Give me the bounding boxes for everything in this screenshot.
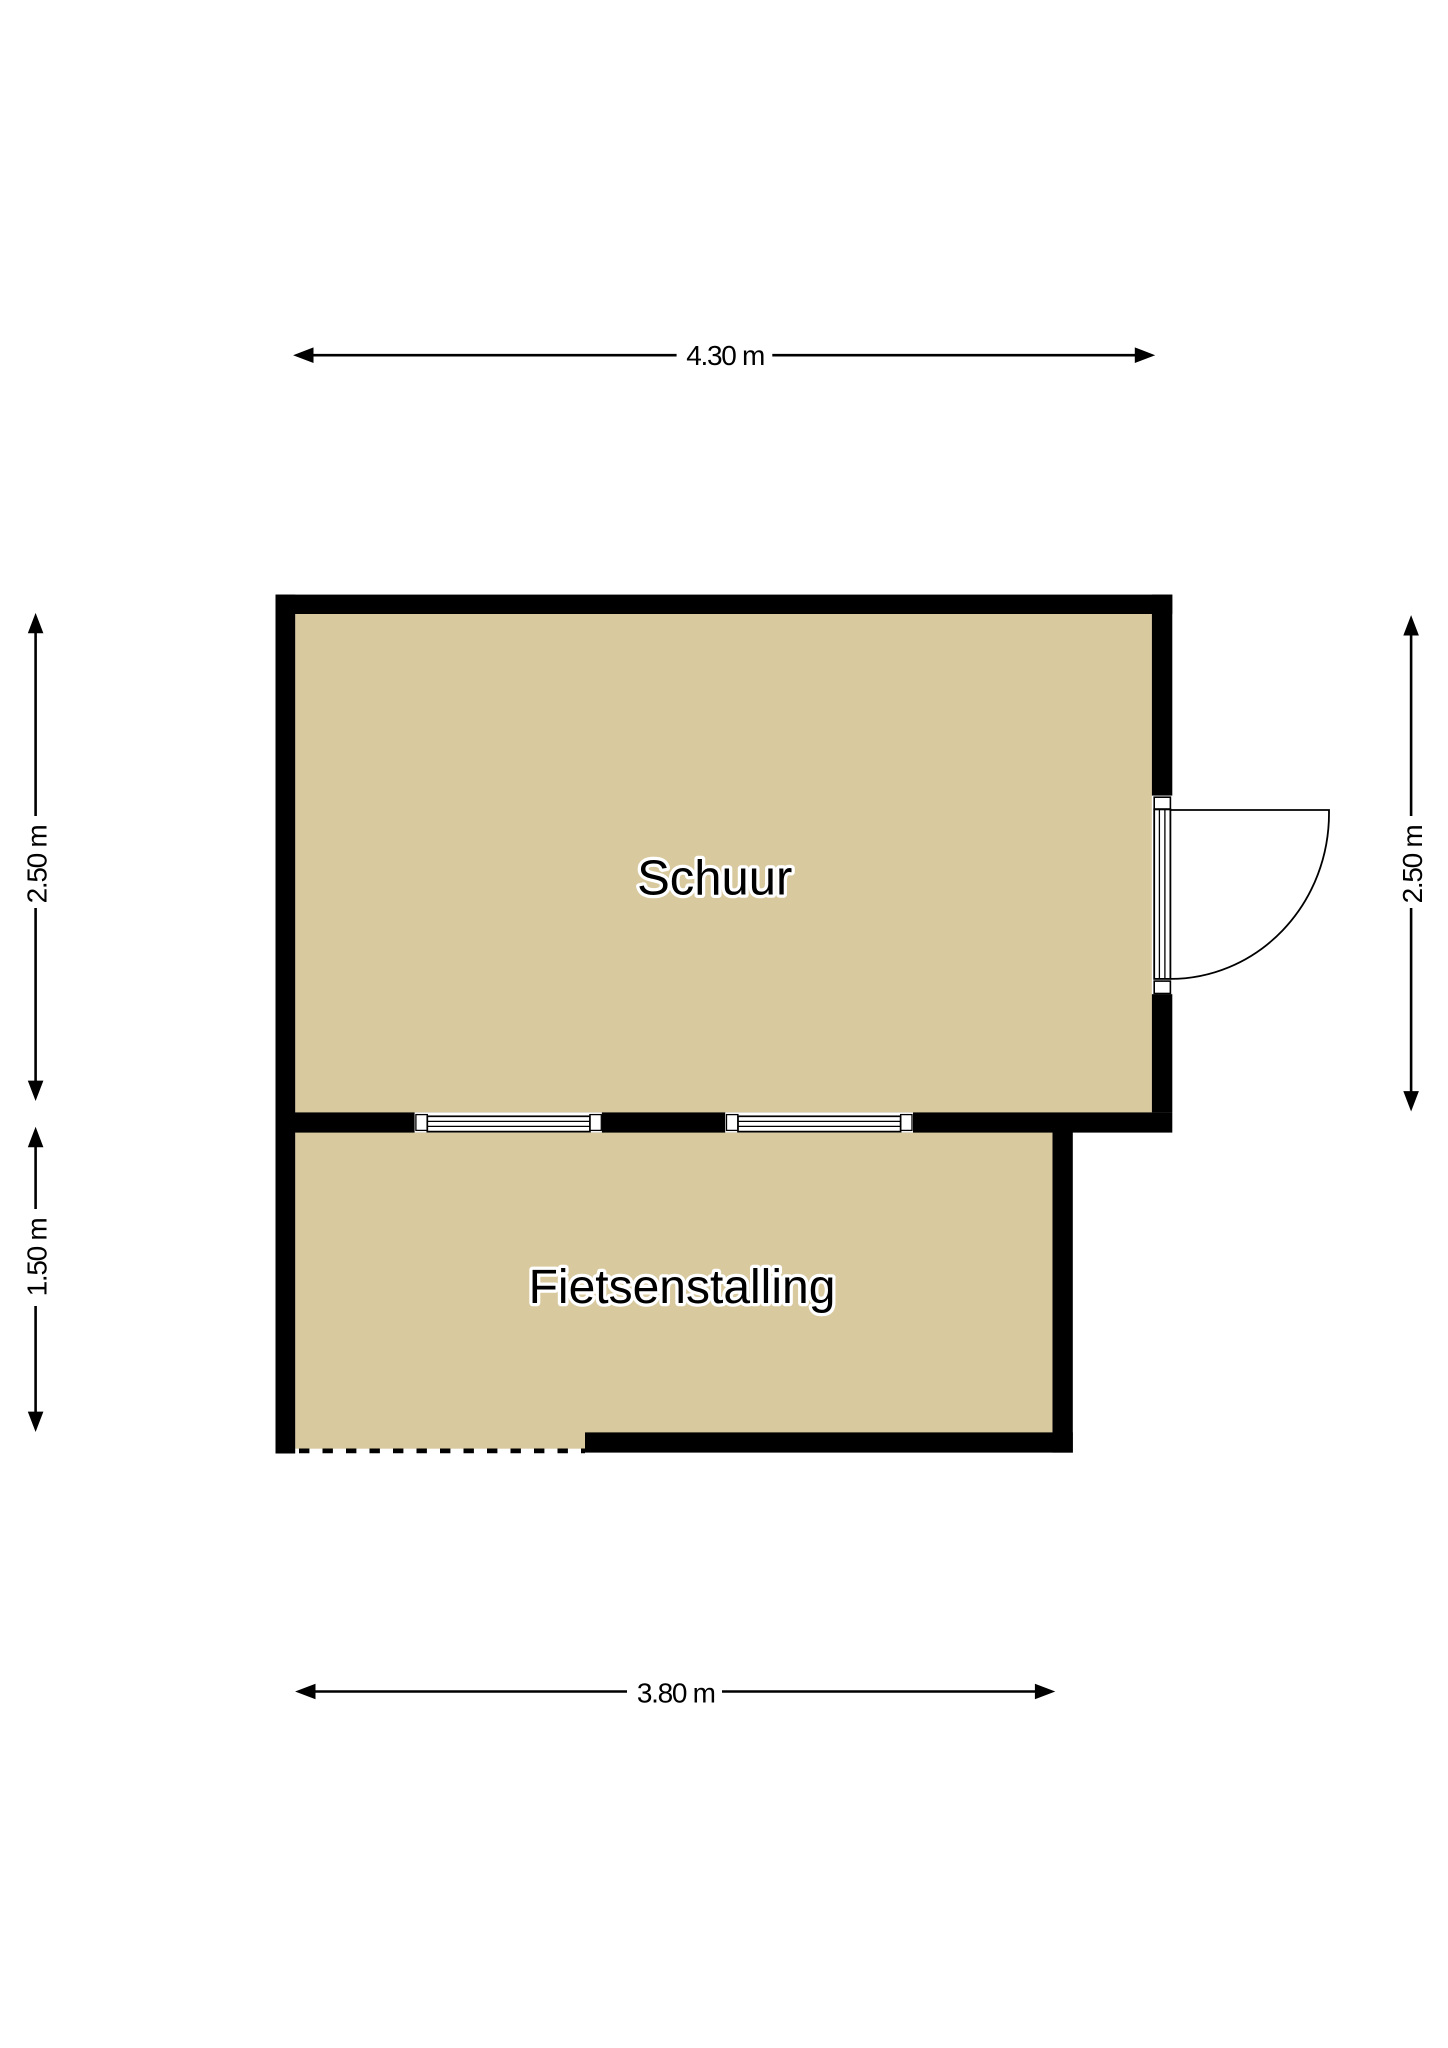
svg-text:3.80 m: 3.80 m [637,1677,715,1708]
svg-text:2.50 m: 2.50 m [1397,826,1428,904]
svg-text:2.50 m: 2.50 m [22,826,53,904]
svg-text:Schuur: Schuur [637,851,792,905]
svg-text:Fietsenstalling: Fietsenstalling [529,1261,836,1314]
svg-text:1.50 m: 1.50 m [22,1219,53,1297]
svg-text:4.30 m: 4.30 m [686,340,764,371]
